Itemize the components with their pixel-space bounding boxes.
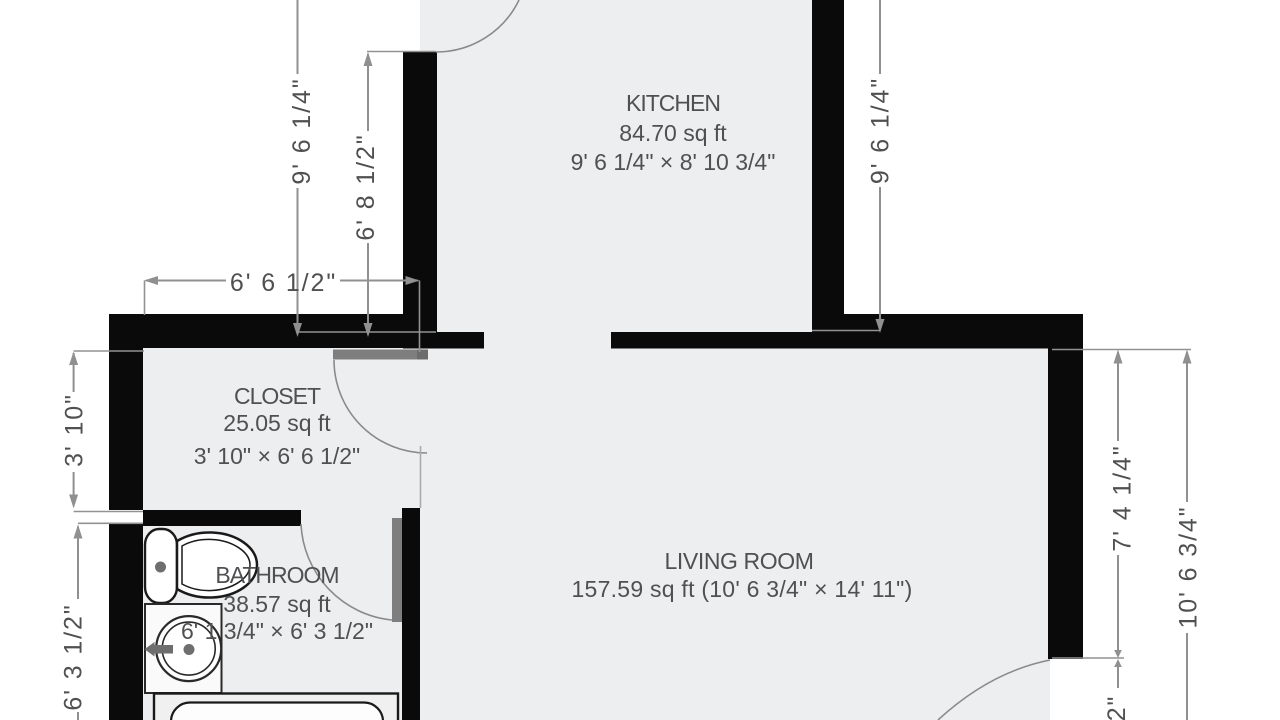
svg-text:3' 10": 3' 10" [61,393,89,467]
svg-text:84.70 sq ft: 84.70 sq ft [619,120,727,146]
svg-text:6' 3 1/2": 6' 3 1/2" [60,603,88,710]
svg-text:BATHROOM: BATHROOM [215,562,338,588]
svg-text:KITCHEN: KITCHEN [626,90,720,116]
svg-text:9' 6 1/4": 9' 6 1/4" [867,77,895,184]
svg-text:2": 2" [1103,695,1131,720]
svg-text:38.57 sq ft: 38.57 sq ft [223,591,331,617]
svg-text:9' 6 1/4": 9' 6 1/4" [288,77,316,184]
svg-text:6' 1 3/4" × 6' 3 1/2": 6' 1 3/4" × 6' 3 1/2" [181,618,373,644]
svg-text:3' 10" × 6' 6 1/2": 3' 10" × 6' 6 1/2" [194,443,360,469]
svg-text:6' 6 1/2": 6' 6 1/2" [230,269,337,297]
svg-text:7' 4 1/4": 7' 4 1/4" [1109,444,1137,551]
svg-text:CLOSET: CLOSET [234,383,321,409]
svg-text:10' 6 3/4": 10' 6 3/4" [1175,505,1203,628]
svg-text:25.05 sq ft: 25.05 sq ft [223,410,331,436]
svg-text:9' 6 1/4" × 8' 10 3/4": 9' 6 1/4" × 8' 10 3/4" [571,149,776,175]
svg-text:LIVING ROOM: LIVING ROOM [665,548,814,574]
svg-text:6' 8 1/2": 6' 8 1/2" [352,133,380,240]
svg-text:157.59 sq ft (10' 6 3/4" × 14': 157.59 sq ft (10' 6 3/4" × 14' 11") [572,576,913,602]
